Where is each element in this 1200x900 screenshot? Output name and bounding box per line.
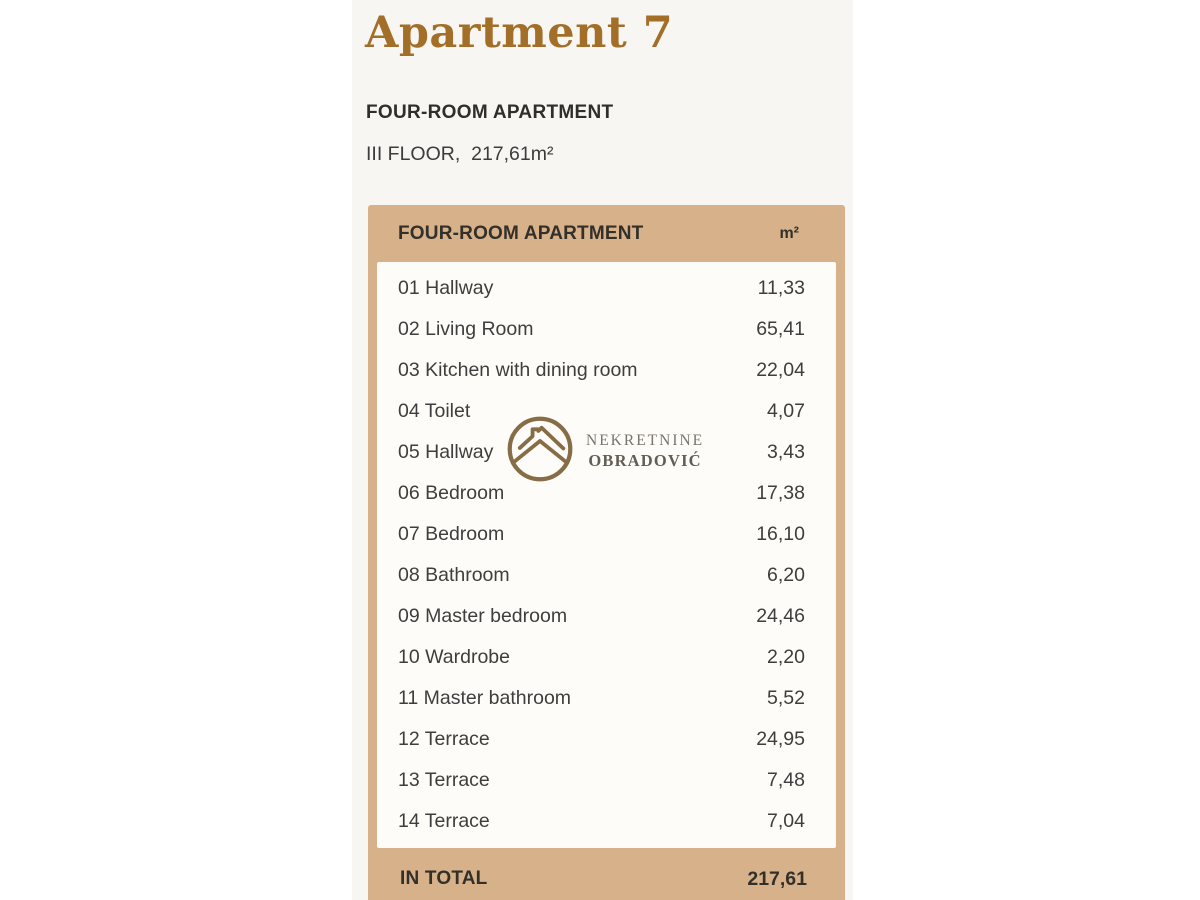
table-row: 11 Master bathroom5,52 (377, 678, 836, 719)
room-area-value: 3,43 (767, 441, 805, 464)
agency-name-line1: NEKRETNINE (586, 432, 704, 450)
room-area-value: 22,04 (756, 359, 805, 382)
table-header: FOUR-ROOM APARTMENT m² (368, 205, 845, 262)
room-area-value: 16,10 (756, 523, 805, 546)
house-in-circle-icon (506, 415, 574, 488)
table-row: 08 Bathroom6,20 (377, 555, 836, 596)
room-label: 01 Hallway (398, 277, 493, 300)
room-area-value: 24,95 (756, 728, 805, 751)
room-label: 12 Terrace (398, 728, 490, 751)
room-area-value: 6,20 (767, 564, 805, 587)
total-label: IN TOTAL (400, 868, 487, 890)
room-area-value: 7,04 (767, 810, 805, 833)
room-label: 14 Terrace (398, 810, 490, 833)
table-row: 07 Bedroom16,10 (377, 514, 836, 555)
room-area-table: FOUR-ROOM APARTMENT m² 01 Hallway11,3302… (368, 205, 845, 900)
page-title: Apartment 7 (365, 8, 673, 58)
room-label: 13 Terrace (398, 769, 490, 792)
table-row: 12 Terrace24,95 (377, 719, 836, 760)
room-label: 08 Bathroom (398, 564, 510, 587)
table-row: 09 Master bedroom24,46 (377, 596, 836, 637)
room-label: 07 Bedroom (398, 523, 504, 546)
room-area-value: 17,38 (756, 482, 805, 505)
table-row: 03 Kitchen with dining room22,04 (377, 350, 836, 391)
table-row: 10 Wardrobe2,20 (377, 637, 836, 678)
floor-and-area-line: III FLOOR, 217,61m² (366, 143, 553, 166)
table-header-unit: m² (779, 225, 799, 243)
room-label: 02 Living Room (398, 318, 534, 341)
room-label: 03 Kitchen with dining room (398, 359, 638, 382)
table-row: 13 Terrace7,48 (377, 760, 836, 801)
room-label: 04 Toilet (398, 400, 470, 423)
room-label: 11 Master bathroom (398, 687, 571, 710)
room-area-value: 4,07 (767, 400, 805, 423)
room-area-value: 11,33 (758, 277, 805, 300)
agency-name-line2: OBRADOVIĆ (588, 451, 701, 471)
table-body: 01 Hallway11,3302 Living Room65,4103 Kit… (377, 262, 836, 848)
apartment-type-subtitle: FOUR-ROOM APARTMENT (366, 102, 613, 124)
table-header-label: FOUR-ROOM APARTMENT (398, 223, 644, 245)
room-area-value: 65,41 (756, 318, 805, 341)
room-label: 10 Wardrobe (398, 646, 510, 669)
agency-watermark: NEKRETNINE OBRADOVIĆ (506, 412, 706, 490)
room-label: 06 Bedroom (398, 482, 504, 505)
agency-name: NEKRETNINE OBRADOVIĆ (586, 432, 704, 471)
room-label: 05 Hallway (398, 441, 493, 464)
table-footer: IN TOTAL 217,61 (368, 848, 845, 900)
room-area-value: 7,48 (767, 769, 805, 792)
room-area-value: 2,20 (767, 646, 805, 669)
room-area-value: 24,46 (756, 605, 805, 628)
room-label: 09 Master bedroom (398, 605, 567, 628)
total-value: 217,61 (747, 868, 807, 891)
table-row: 01 Hallway11,33 (377, 268, 836, 309)
room-area-value: 5,52 (767, 687, 805, 710)
table-row: 14 Terrace7,04 (377, 801, 836, 842)
table-row: 02 Living Room65,41 (377, 309, 836, 350)
